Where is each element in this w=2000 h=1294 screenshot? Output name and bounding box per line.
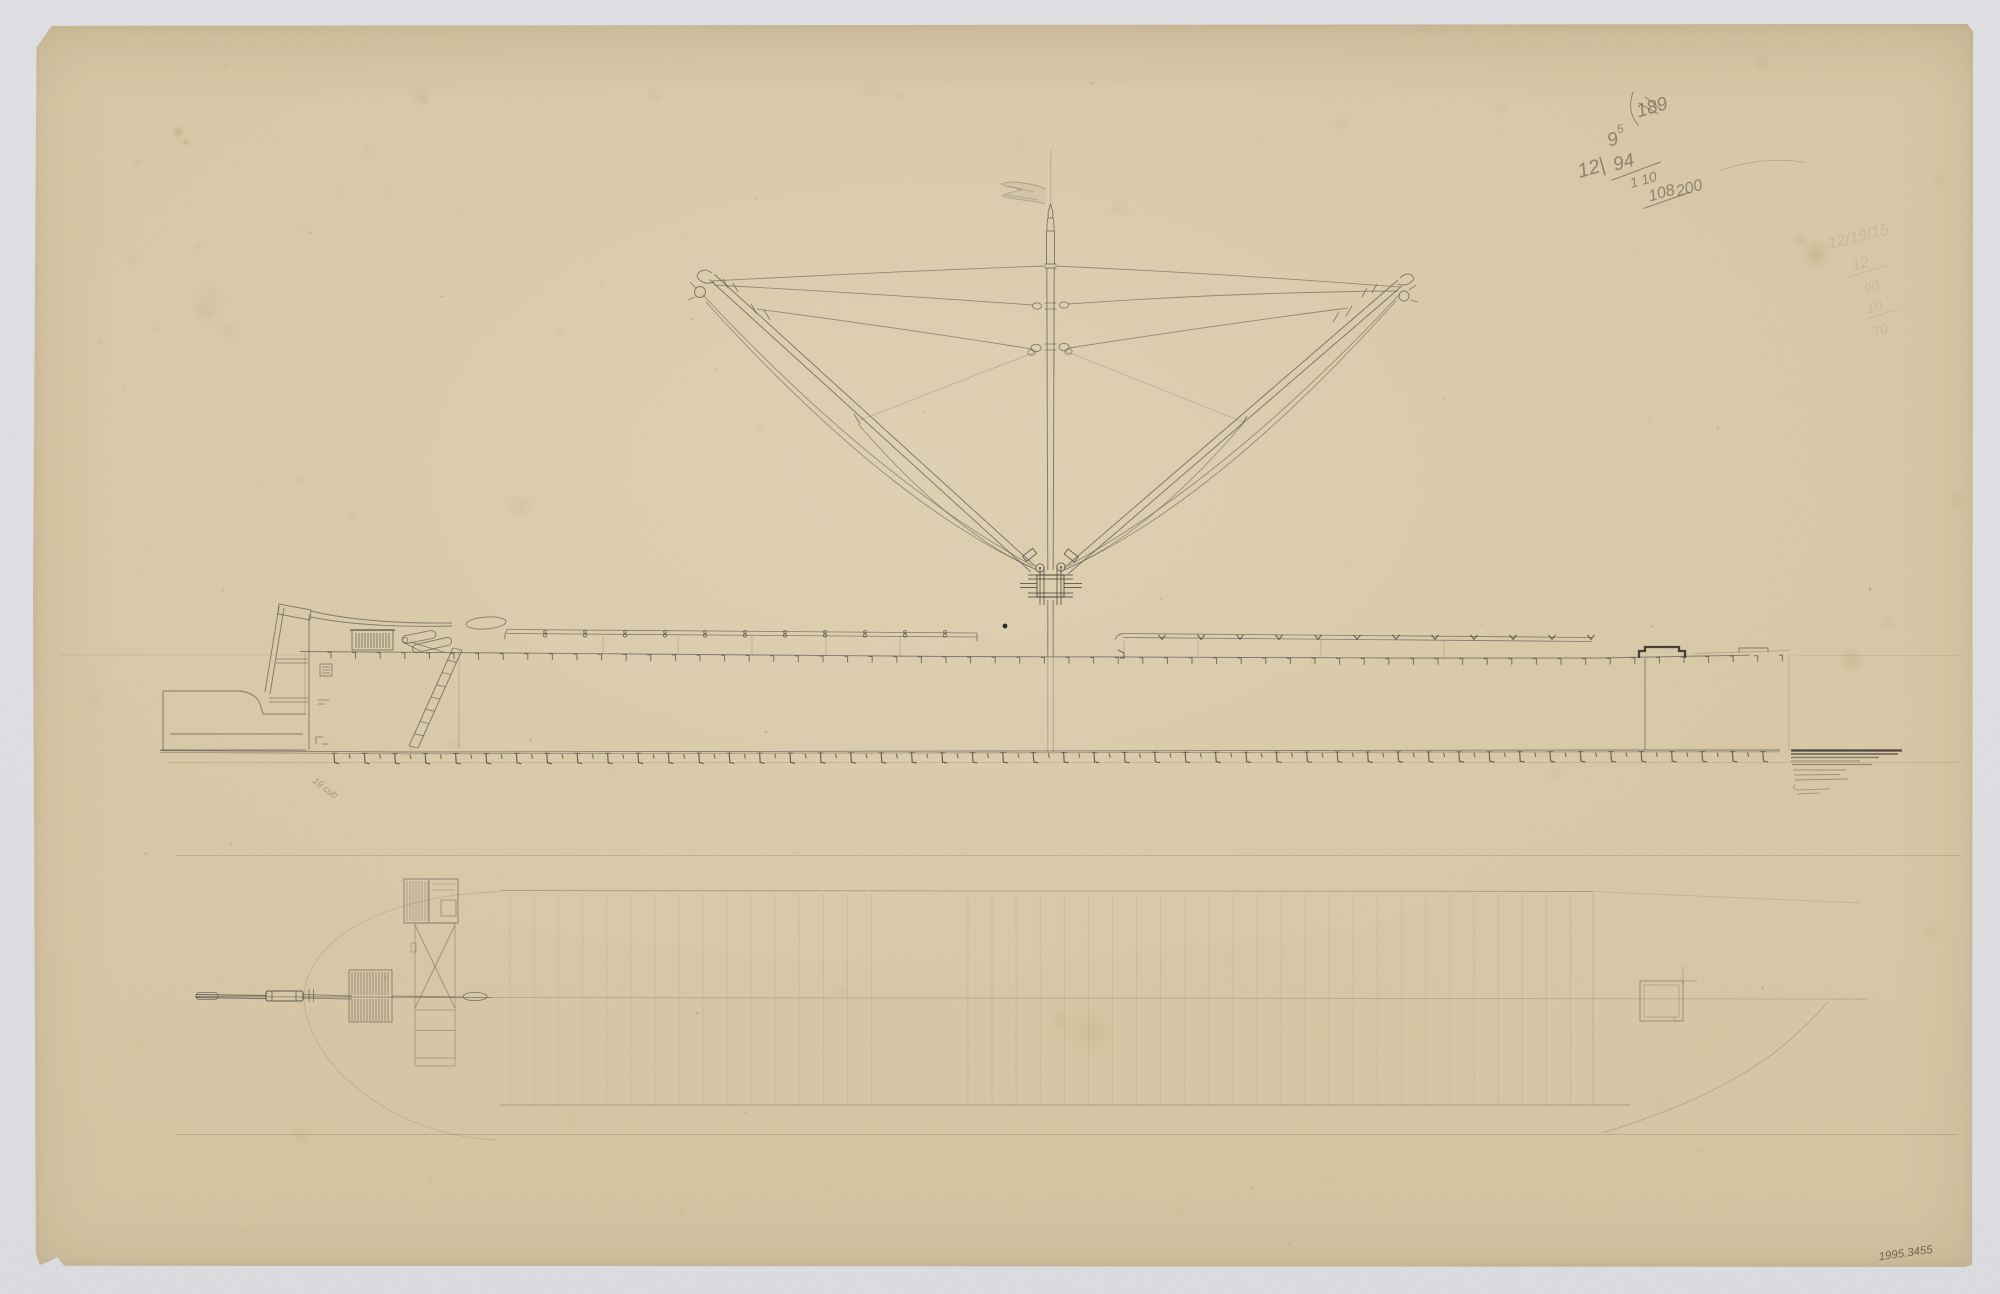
- svg-text:200: 200: [1673, 177, 1704, 201]
- svg-text:189: 189: [1634, 93, 1671, 122]
- svg-text:70: 70: [1871, 320, 1890, 339]
- svg-text:1995.3455: 1995.3455: [1878, 1244, 1934, 1264]
- svg-text:90: 90: [1862, 277, 1881, 296]
- svg-text:12/19/15: 12/19/15: [1826, 221, 1891, 253]
- svg-text:12|: 12|: [1575, 154, 1607, 183]
- svg-text:19 cub: 19 cub: [310, 776, 340, 802]
- svg-text:10: 10: [1865, 297, 1884, 316]
